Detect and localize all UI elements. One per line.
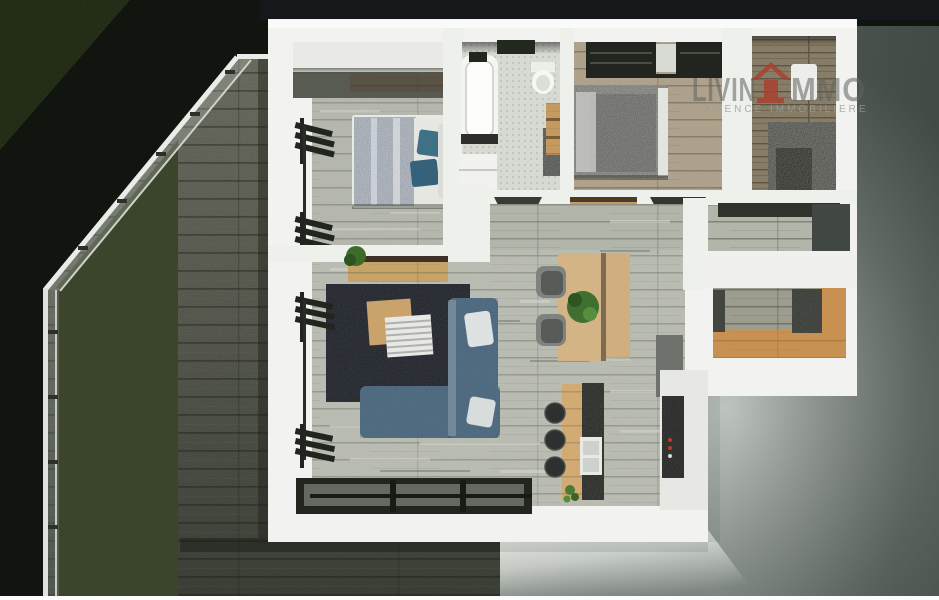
svg-text:AGENCE IMMOBILIERE: AGENCE IMMOBILIERE <box>704 104 869 115</box>
svg-text:MMO: MMO <box>791 72 866 109</box>
